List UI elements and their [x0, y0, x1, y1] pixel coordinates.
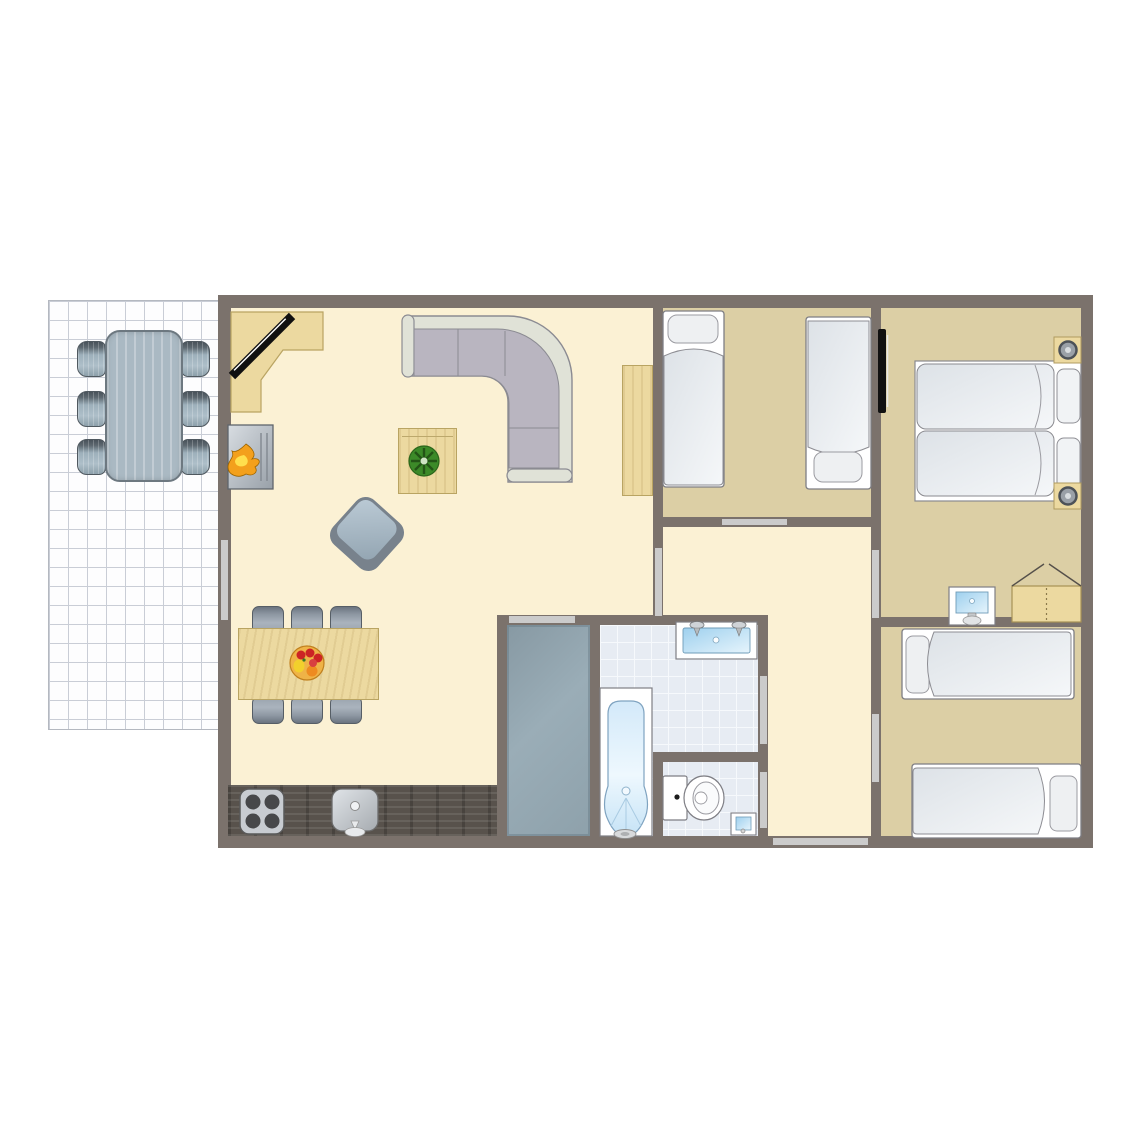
dining-table — [238, 628, 379, 700]
storage-door — [509, 616, 575, 623]
wall — [653, 752, 663, 836]
kitchen-counter — [228, 785, 497, 836]
coffee-table — [398, 428, 457, 494]
bedroom-bottom-right-door — [872, 714, 879, 782]
floorplan-canvas — [0, 0, 1145, 1145]
patio-chair — [181, 391, 210, 427]
dining-chair — [252, 696, 284, 724]
bedroom-top-middle-floor — [663, 308, 871, 517]
dining-chair — [291, 696, 323, 724]
wall — [497, 615, 507, 836]
dining-chair — [330, 696, 362, 724]
bathroom-floor — [600, 625, 758, 836]
wall — [590, 625, 600, 836]
patio-table — [105, 330, 183, 482]
wall — [871, 617, 1081, 627]
entrance-door — [773, 838, 868, 845]
bedroom-top-middle-door — [722, 519, 787, 525]
patio-chair — [77, 391, 106, 427]
wall — [653, 752, 758, 762]
hallway-door — [655, 548, 662, 616]
sideboard — [622, 365, 653, 496]
bedroom-top-right-door — [872, 550, 879, 618]
patio-chair — [77, 439, 106, 475]
patio-chair — [181, 341, 210, 377]
bedroom-bottom-right-floor — [881, 627, 1081, 836]
bedroom-top-right-floor — [881, 308, 1081, 617]
bathroom-door — [760, 676, 767, 744]
patio-chair — [77, 341, 106, 377]
toilet-door — [760, 772, 767, 828]
storage-room-floor — [507, 625, 590, 836]
terrace-door — [221, 540, 228, 620]
patio-chair — [181, 439, 210, 475]
